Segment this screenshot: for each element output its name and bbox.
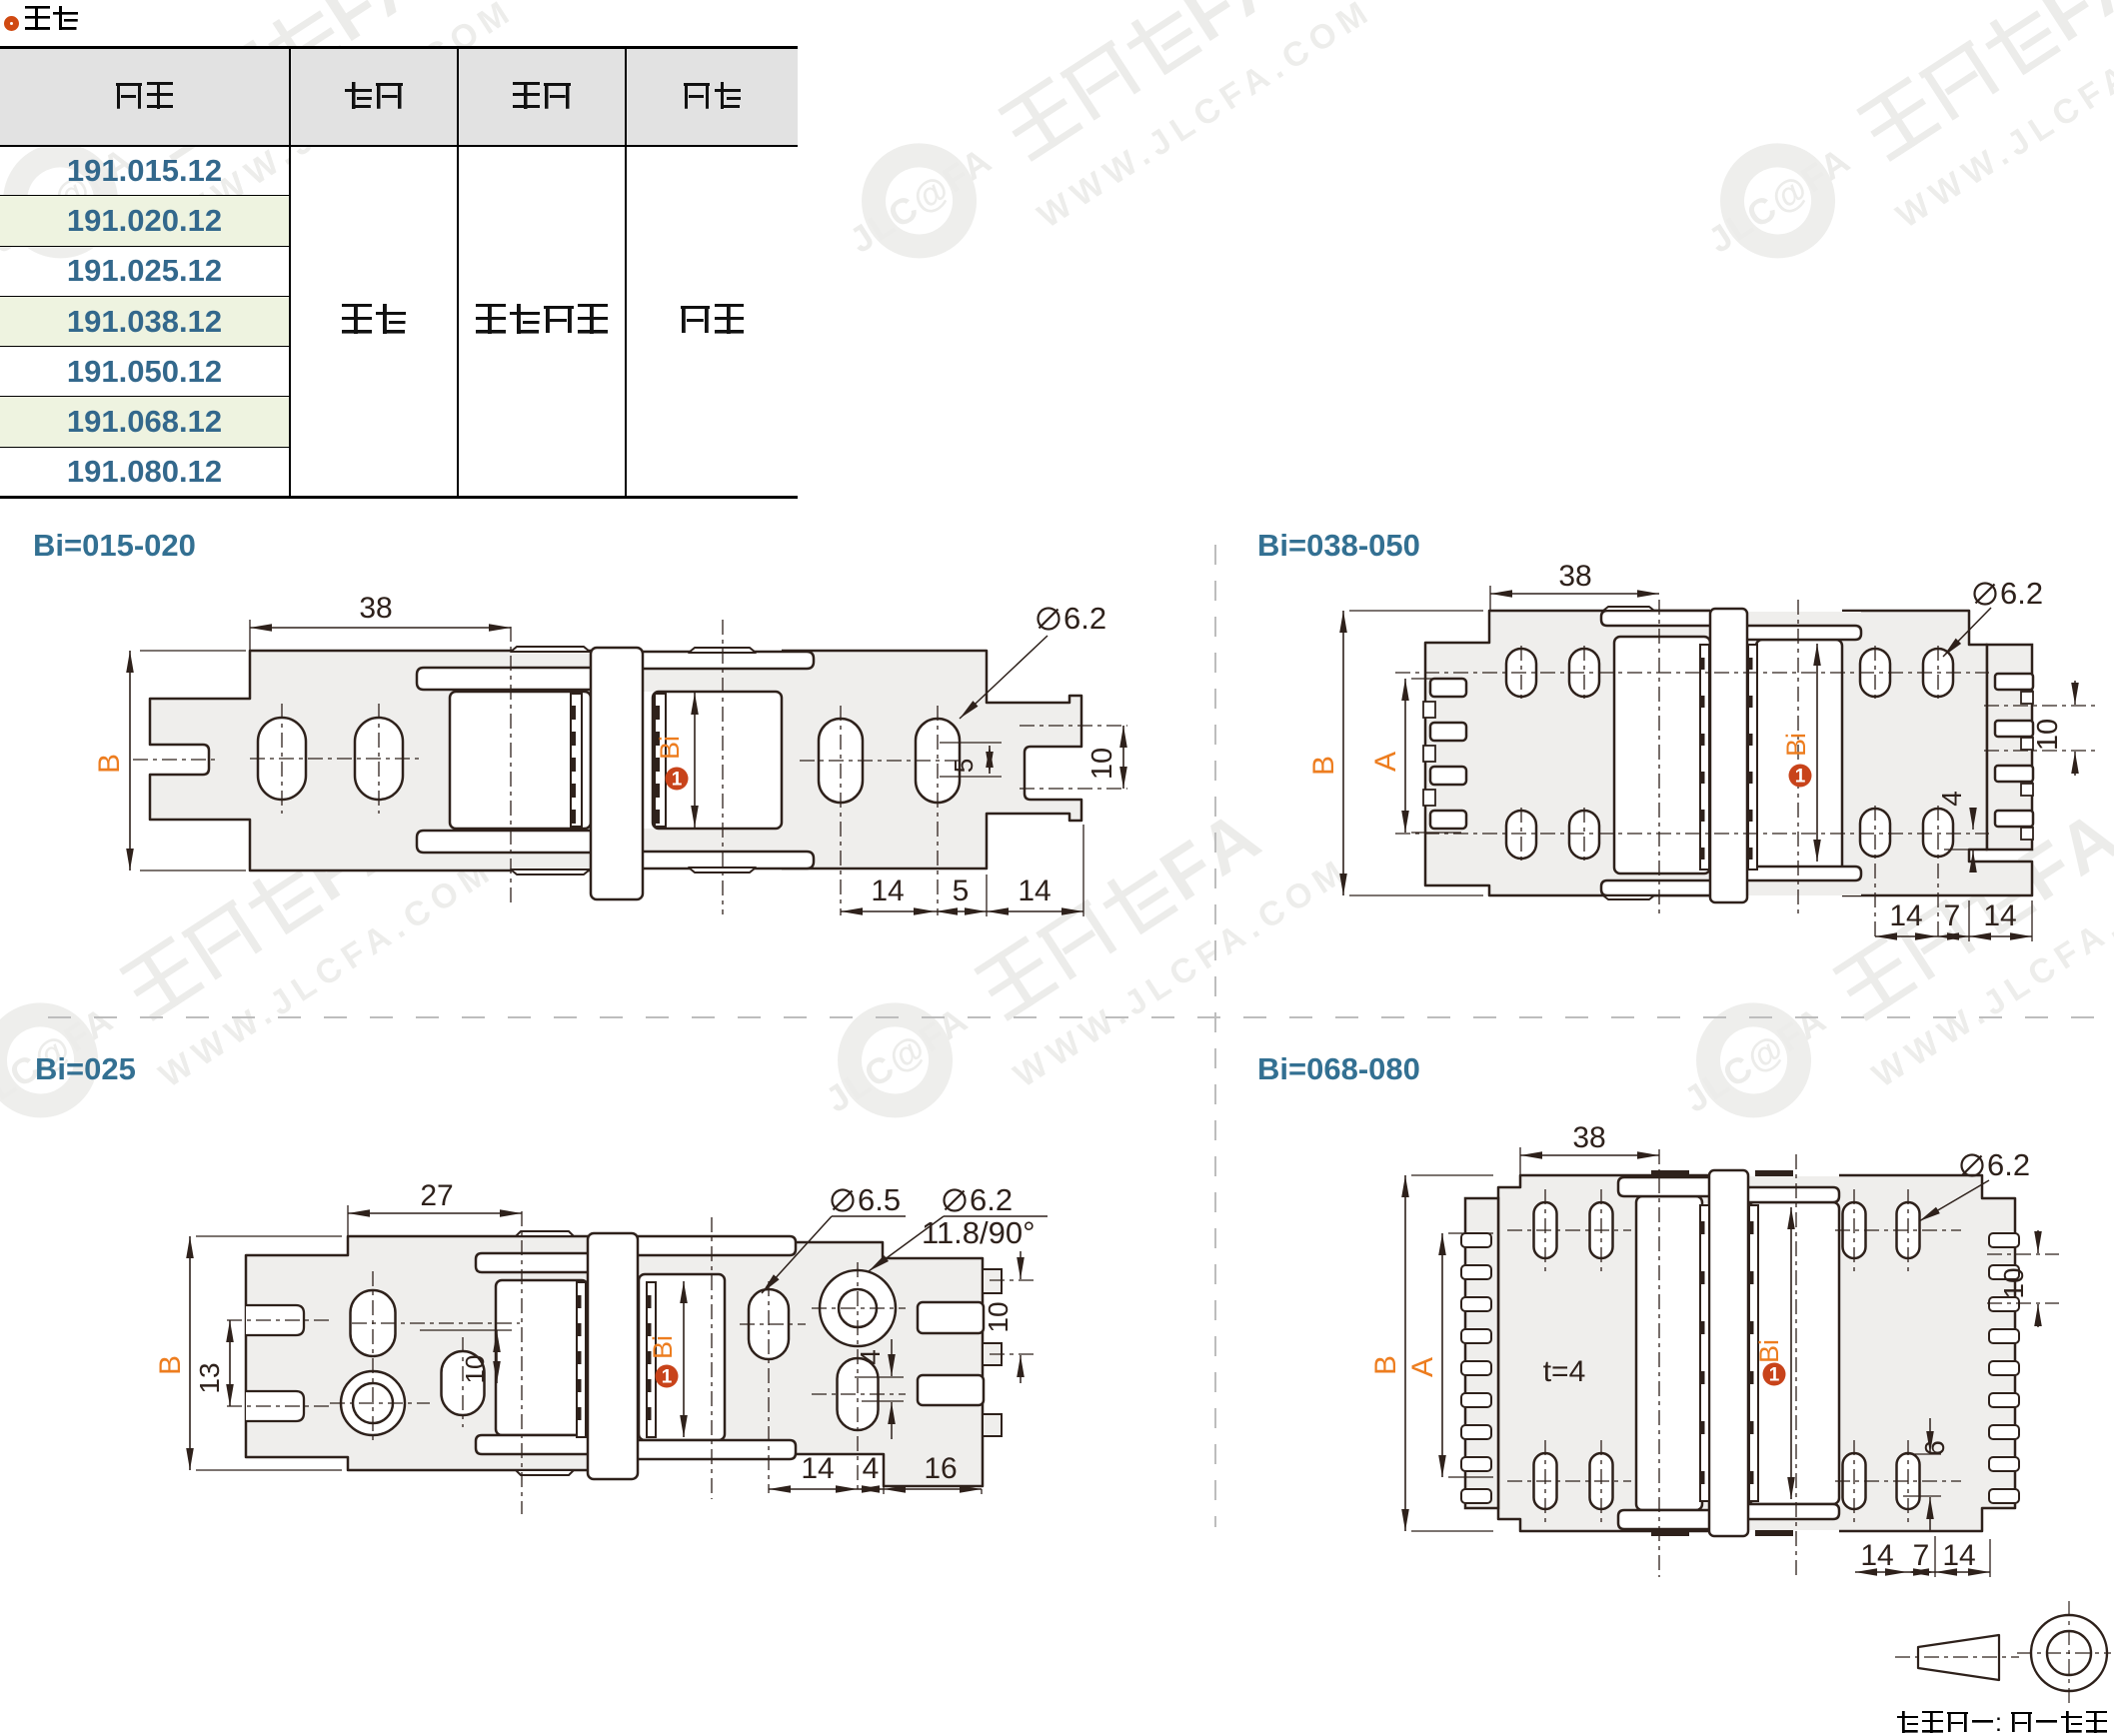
- svg-text:B: B: [93, 754, 126, 774]
- svg-text:5: 5: [949, 759, 979, 773]
- svg-text:13: 13: [194, 1362, 225, 1393]
- svg-text:1: 1: [672, 770, 683, 791]
- svg-text:38: 38: [1572, 1121, 1605, 1154]
- svg-text:6.2: 6.2: [1063, 601, 1106, 636]
- svg-text:16: 16: [924, 1452, 957, 1485]
- svg-text:5: 5: [953, 874, 970, 907]
- svg-text:38: 38: [1558, 560, 1591, 593]
- svg-text:6.2: 6.2: [970, 1182, 1013, 1217]
- svg-text:Bi: Bi: [1781, 733, 1811, 757]
- svg-text:1: 1: [662, 1367, 673, 1388]
- svg-text:6: 6: [1919, 1440, 1950, 1456]
- svg-text:6.2: 6.2: [1987, 1147, 2030, 1182]
- svg-text:A: A: [1369, 752, 1402, 772]
- svg-text:14: 14: [871, 874, 904, 907]
- svg-text:1: 1: [1769, 1365, 1780, 1386]
- svg-text:7: 7: [1913, 1539, 1930, 1572]
- svg-text:Bi: Bi: [648, 1335, 678, 1359]
- svg-text:4: 4: [1936, 791, 1967, 807]
- svg-text:27: 27: [420, 1179, 453, 1212]
- svg-text:38: 38: [359, 592, 392, 625]
- svg-text:10: 10: [1998, 1267, 2029, 1298]
- svg-text:1: 1: [1795, 767, 1806, 788]
- svg-text:10: 10: [460, 1355, 490, 1384]
- svg-text:4: 4: [855, 1349, 886, 1365]
- svg-text:7: 7: [1944, 899, 1961, 932]
- svg-text:10: 10: [2032, 719, 2064, 751]
- svg-text:14: 14: [801, 1452, 834, 1485]
- svg-text:14: 14: [1860, 1539, 1893, 1572]
- svg-text:11.8/90°: 11.8/90°: [922, 1215, 1036, 1250]
- svg-text:Bi: Bi: [655, 736, 685, 760]
- svg-text:14: 14: [1983, 899, 2016, 932]
- svg-text:4: 4: [863, 1452, 880, 1485]
- svg-text:10: 10: [1086, 748, 1118, 780]
- svg-text:B: B: [1369, 1355, 1402, 1375]
- svg-text:Bi: Bi: [1754, 1339, 1784, 1363]
- svg-text:10: 10: [983, 1301, 1014, 1332]
- svg-text:14: 14: [1889, 899, 1922, 932]
- svg-text:A: A: [1406, 1357, 1439, 1377]
- svg-text:6.2: 6.2: [2000, 576, 2043, 611]
- svg-text:B: B: [1307, 756, 1340, 776]
- svg-text:6.5: 6.5: [858, 1182, 901, 1217]
- svg-text:14: 14: [1942, 1539, 1975, 1572]
- svg-text:14: 14: [1018, 874, 1051, 907]
- svg-text:t=4: t=4: [1543, 1355, 1586, 1388]
- svg-text:B: B: [154, 1355, 187, 1375]
